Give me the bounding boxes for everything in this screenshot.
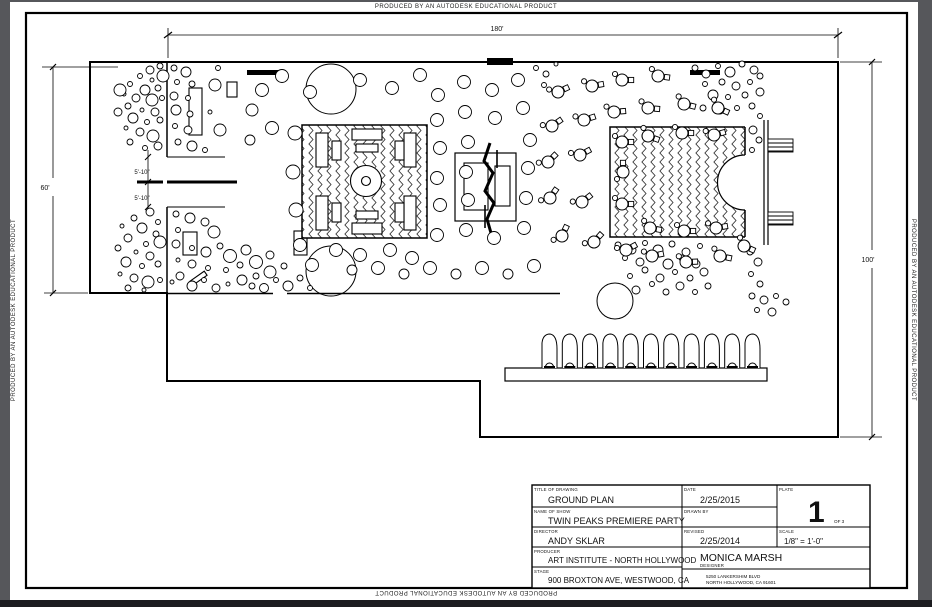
circle-element [155, 85, 161, 91]
use-element [684, 334, 699, 368]
circle-element [208, 110, 212, 114]
circle-element [489, 112, 502, 125]
stage-label: STAGE [534, 569, 549, 574]
circle-element [520, 192, 533, 205]
circle-element [253, 273, 259, 279]
circle-element [125, 103, 131, 109]
circle-element [354, 74, 367, 87]
circle-element [140, 85, 150, 95]
circle-element [306, 259, 319, 272]
circle-element [702, 70, 710, 78]
circle-element [145, 120, 150, 125]
circle-element [460, 166, 473, 179]
circle-element [154, 142, 162, 150]
circle-element [246, 104, 258, 116]
circle-element [434, 199, 447, 212]
circle-element [125, 285, 131, 291]
use-element [542, 334, 557, 368]
banner-right: PRODUCED BY AN AUTODESK EDUCATIONAL PROD… [910, 219, 916, 401]
rect-element [356, 144, 378, 152]
circle-element [486, 84, 499, 97]
producer-label: PRODUCER [534, 549, 560, 554]
circle-element [750, 66, 758, 74]
circle-element [157, 70, 169, 82]
circle-element [542, 83, 547, 88]
circle-element [217, 243, 223, 249]
circle-element [187, 281, 197, 291]
circle-element [663, 289, 669, 295]
circle-element [286, 165, 300, 179]
circle-element [190, 246, 195, 251]
circle-element [264, 266, 276, 278]
circle-element [749, 126, 757, 134]
rect-element [356, 211, 378, 219]
circle-element [146, 66, 154, 74]
dimension-top-label: 180' [490, 26, 503, 33]
circle-element [170, 92, 178, 100]
circle-element [173, 124, 178, 129]
circle-element [216, 66, 221, 71]
circle-element [128, 82, 133, 87]
circle-element [250, 256, 263, 269]
circle-element [157, 63, 163, 69]
circle-element [757, 281, 763, 287]
use-element [745, 334, 760, 368]
circle-element [146, 208, 154, 216]
circle-element [158, 278, 163, 283]
circle-element [725, 67, 735, 77]
circle-element [186, 96, 191, 101]
circle-element [642, 267, 648, 273]
show-name: TWIN PEAKS PREMIERE PARTY [548, 516, 685, 526]
circle-element [224, 250, 237, 263]
circle-element [171, 65, 177, 71]
circle-element [249, 283, 255, 289]
use-element [644, 334, 659, 368]
circle-element [758, 114, 763, 119]
circle-element [431, 172, 444, 185]
dimension-right-label: 100' [861, 257, 874, 264]
dimension-entry-lower: 5'-10" [134, 196, 149, 202]
circle-element [121, 257, 131, 267]
rect-element [404, 196, 416, 230]
circle-element [176, 228, 181, 233]
circle-element [283, 281, 293, 291]
booth-platform [505, 368, 767, 381]
circle-element [460, 224, 473, 237]
circle-element [172, 240, 180, 248]
circle-element [134, 250, 138, 254]
circle-element [160, 96, 165, 101]
circle-element [458, 76, 471, 89]
circle-element [748, 80, 753, 85]
circle-element [128, 113, 138, 123]
circle-element [673, 270, 678, 275]
circle-element [281, 263, 287, 269]
circle-element [114, 84, 126, 96]
circle-element [170, 280, 174, 284]
booth-row [505, 334, 767, 381]
circle-element [187, 111, 193, 117]
circle-element [132, 94, 140, 102]
circle-element [705, 283, 711, 289]
circle-element [543, 71, 549, 77]
use-element [664, 334, 679, 368]
circle-element [208, 226, 220, 238]
circle-element [488, 232, 501, 245]
circle-element [636, 258, 644, 266]
circle-element [118, 272, 122, 276]
circle-element [462, 136, 475, 149]
circle-element [142, 288, 146, 292]
circle-element [156, 220, 161, 225]
circle-element [749, 293, 755, 299]
circle-element [256, 84, 269, 97]
circle-element [517, 102, 530, 115]
circle-element [528, 260, 541, 273]
circle-element [209, 79, 221, 91]
circle-element [742, 92, 748, 98]
producer-name: ART INSTITUTE - NORTH HOLLYWOOD [548, 556, 697, 565]
circle-element [136, 128, 144, 136]
circle-element [120, 224, 124, 228]
circle-element [127, 139, 133, 145]
rect-element [332, 203, 341, 222]
circle-element [308, 286, 313, 291]
circle-element [362, 177, 371, 186]
circle-element [462, 194, 475, 207]
circle-element [201, 247, 211, 257]
circle-element [297, 275, 303, 281]
scale-value: 1/8" = 1'-0" [784, 537, 823, 546]
director-name: ANDY SKLAR [548, 536, 605, 546]
circle-element [755, 308, 760, 313]
circle-element [289, 203, 303, 217]
circle-element [431, 114, 444, 127]
circle-element [432, 89, 445, 102]
circle-element [534, 66, 539, 71]
rect-element [395, 141, 404, 160]
circle-element [124, 126, 128, 130]
circle-element [434, 142, 447, 155]
rect-element [395, 203, 404, 222]
circle-element [138, 74, 143, 79]
circle-element [176, 258, 180, 262]
circle-element [276, 70, 289, 83]
circle-element [142, 276, 154, 288]
circle-element [524, 134, 537, 147]
use-element [562, 334, 577, 368]
circle-element [347, 265, 357, 275]
circle-element [114, 108, 122, 116]
drawing-title: GROUND PLAN [548, 495, 614, 505]
circle-element [173, 211, 179, 217]
circle-element [424, 262, 437, 275]
circle-element [188, 260, 196, 268]
circle-element [756, 88, 764, 96]
circle-element [703, 82, 708, 87]
circle-element [663, 259, 673, 269]
circle-element [147, 130, 159, 142]
circle-element [212, 284, 220, 292]
rect-element [183, 232, 197, 255]
circle-element [518, 222, 531, 235]
banner-top: PRODUCED BY AN AUTODESK EDUCATIONAL PROD… [375, 4, 557, 10]
circle-element [146, 252, 154, 260]
circle-element [202, 278, 207, 283]
circle-element [414, 69, 427, 82]
circle-element [124, 234, 132, 242]
rect-element [404, 133, 416, 167]
circle-element [237, 275, 247, 285]
circle-element [288, 126, 302, 140]
designer-address-1: 5250 LANKERSHIM BLVD [706, 574, 761, 579]
title-label: TITLE OF DRAWING [534, 487, 578, 492]
circle-element [201, 218, 209, 226]
circle-element [669, 241, 675, 247]
rect-element [227, 82, 237, 97]
circle-element [140, 264, 145, 269]
circle-element [700, 105, 706, 111]
plate-label: PLATE [779, 487, 793, 492]
date-label: DATE [684, 487, 696, 492]
circle-element [131, 215, 137, 221]
circle-element [768, 308, 776, 316]
circle-element [143, 146, 148, 151]
director-label: DIRECTOR [534, 529, 558, 534]
circle-element [632, 286, 640, 294]
circle-element [735, 106, 740, 111]
circle-element [237, 262, 243, 268]
dance-floor-left [302, 125, 427, 238]
circle-element [274, 278, 279, 283]
circle-element [146, 94, 158, 106]
circle-element [451, 269, 461, 279]
circle-element [750, 148, 755, 153]
use-element [603, 334, 618, 368]
designer-label: DESIGNER [700, 563, 724, 568]
circle-element [187, 141, 197, 151]
circle-element [155, 261, 161, 267]
show-label: NAME OF SHOW [534, 509, 571, 514]
circle-element [754, 258, 762, 266]
circle-element [693, 290, 698, 295]
circle-element [503, 269, 513, 279]
circle-element [171, 105, 181, 115]
circle-element [175, 139, 181, 145]
circle-element [330, 244, 343, 257]
wall-accent [487, 58, 513, 65]
circle-element [181, 67, 191, 77]
center-stage [455, 143, 516, 233]
circle-element [266, 122, 279, 135]
drawn-by-label: DRAWN BY [684, 509, 709, 514]
circle-element [241, 245, 251, 255]
use-element [704, 334, 719, 368]
circle-element [150, 78, 154, 82]
rect-element [352, 129, 382, 140]
rect-element [352, 223, 382, 234]
rect-element [768, 212, 793, 225]
circle-element [700, 268, 708, 276]
circle-element [459, 106, 472, 119]
date-value: 2/25/2015 [700, 495, 740, 505]
circle-element [692, 65, 698, 71]
dimension-entry-upper: 5'-10" [134, 170, 149, 176]
circle-element [184, 126, 192, 134]
circle-element [260, 284, 269, 293]
banner-bottom: PRODUCED BY AN AUTODESK EDUCATIONAL PROD… [375, 589, 557, 595]
circle-element [760, 296, 768, 304]
circle-element [406, 252, 419, 265]
circle-element [203, 148, 208, 153]
circle-element [512, 74, 525, 87]
circle-element [643, 241, 648, 246]
title-block: TITLE OF DRAWING GROUND PLAN NAME OF SHO… [532, 485, 870, 588]
rect-element [332, 141, 341, 160]
rect-element [768, 139, 793, 152]
circle-element [154, 236, 166, 248]
use-element [623, 334, 638, 368]
circle-element [386, 82, 399, 95]
circle-element [304, 86, 317, 99]
circle-element [656, 274, 664, 282]
circle-element [739, 61, 745, 67]
designer-address-2: NORTH HOLLYWOOD, CA 91601 [706, 580, 776, 585]
circle-element [151, 108, 159, 116]
circle-element [687, 275, 693, 281]
circle-element [224, 268, 229, 273]
circle-element [749, 272, 754, 277]
circle-element [431, 229, 444, 242]
use-element [725, 334, 740, 368]
circle-element [294, 239, 307, 252]
circle-element [726, 95, 731, 100]
dimension-left-label: 60' [40, 185, 49, 192]
stage-address: 900 BROXTON AVE, WESTWOOD, CA [548, 576, 690, 585]
revised-value: 2/25/2014 [700, 536, 740, 546]
plate-of: OF 3 [834, 519, 845, 524]
circle-element [676, 282, 684, 290]
circle-element [698, 244, 703, 249]
circle-element [783, 299, 789, 305]
circle-element [650, 282, 655, 287]
circle-element [185, 213, 195, 223]
circle-element [140, 108, 144, 112]
circle-element [399, 269, 409, 279]
circle-element [189, 81, 195, 87]
circle-element [130, 274, 138, 282]
cad-sheet-viewport: PRODUCED BY AN AUTODESK EDUCATIONAL PROD… [0, 0, 932, 607]
circle-element [206, 266, 211, 271]
circle-element [354, 249, 367, 262]
circle-element [749, 103, 755, 109]
circle-element [266, 251, 274, 259]
circle-element [137, 223, 147, 233]
circle-element [372, 262, 385, 275]
circle-element [628, 274, 633, 279]
banner-left: PRODUCED BY AN AUTODESK EDUCATIONAL PROD… [11, 219, 17, 401]
viewer-footer-strip [0, 600, 932, 607]
circle-element [157, 117, 163, 123]
circle-element [175, 80, 180, 85]
revised-label: REVISED [684, 529, 704, 534]
circle-element [774, 294, 779, 299]
wall-accent [247, 70, 280, 75]
circle-element [719, 79, 725, 85]
circle-element [176, 272, 184, 280]
circle-element [756, 137, 762, 143]
circle-element [757, 73, 763, 79]
circle-element [214, 124, 226, 136]
circle-element [115, 245, 121, 251]
rect-element [316, 133, 328, 167]
circle-element [732, 82, 740, 90]
circle-element [226, 282, 230, 286]
scale-label: SCALE [779, 529, 794, 534]
plate-number: 1 [808, 496, 825, 529]
circle-element [522, 162, 535, 175]
use-element [583, 334, 598, 368]
circle-element [716, 64, 721, 69]
rect-element [316, 196, 328, 230]
circle-element [245, 135, 255, 145]
circle-element [144, 242, 149, 247]
circle-element [554, 62, 558, 66]
circle-element [476, 262, 489, 275]
circle-element [384, 244, 397, 257]
